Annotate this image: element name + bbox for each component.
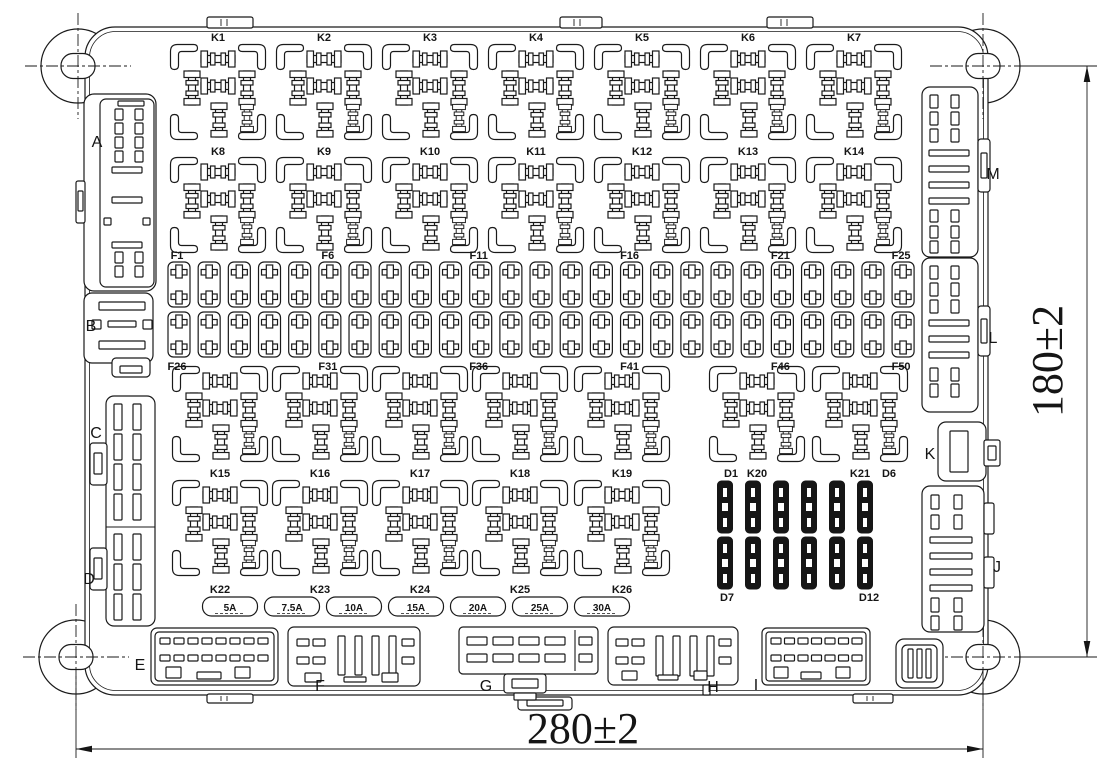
fuse-footprint [590,312,612,357]
relay-label-K21: K21 [850,468,870,480]
fuse-footprint [560,312,582,357]
fuse-footprint [228,312,250,357]
fuse-footprint [289,262,311,307]
connector-label-D: D [83,571,95,588]
fuse-footprint [711,312,733,357]
relay-label-K1: K1 [211,32,225,44]
relay-label-K22: K22 [210,584,230,596]
fuse-rating-7.5A: 7.5A [281,603,302,614]
fuse-footprint [651,312,673,357]
height-dimension-label: 180±2 [1023,305,1072,417]
relay-label-K10: K10 [420,146,440,158]
fuse-footprint [892,262,914,307]
relay-label-K8: K8 [211,146,225,158]
relay-label-K26: K26 [612,584,632,596]
diode [858,481,873,533]
fuse-footprint [168,262,190,307]
connector-I [762,628,870,685]
fuse-rating-30A: 30A [593,603,611,614]
relay-label-K25: K25 [510,584,530,596]
diode-label-D7: D7 [720,592,734,604]
relay-label-K3: K3 [423,32,437,44]
fuse-footprint [319,312,341,357]
fuse-footprint [349,312,371,357]
fuse-label-F6: F6 [321,250,334,262]
fuse-label-F36: F36 [469,361,488,373]
diode [718,537,733,589]
fuse-footprint [289,312,311,357]
fuse-footprint [470,262,492,307]
fuse-footprint [711,262,733,307]
connector-label-G: G [480,678,492,695]
connector-A [76,94,156,291]
connector-label-E: E [135,657,146,674]
fuse-footprint [621,262,643,307]
relay-label-K6: K6 [741,32,755,44]
fuse-footprint [681,312,703,357]
fuse-footprint [590,262,612,307]
connector-aux-square [896,639,943,688]
drawing-canvas: 5A7.5A10A15A20A25A30A K1K2K3K4K5K6K7K8K9… [0,0,1120,768]
relay-label-K13: K13 [738,146,758,158]
fuse-relay-box-drawing: 5A7.5A10A15A20A25A30A K1K2K3K4K5K6K7K8K9… [0,0,1120,768]
connector-label-B: B [86,318,97,335]
connector-F [288,627,420,686]
connector-label-A: A [92,134,103,151]
fuse-footprint [500,312,522,357]
fuse-footprint [651,262,673,307]
fuse-label-F21: F21 [771,250,790,262]
relay-label-K12: K12 [632,146,652,158]
fuse-rating-25A: 25A [531,603,549,614]
fuse-footprint [440,312,462,357]
fuse-footprint [530,262,552,307]
fuse-footprint [470,312,492,357]
fuse-footprint [198,262,220,307]
fuse-label-F25: F25 [892,250,911,262]
fuse-footprint [802,262,824,307]
relay-label-K23: K23 [310,584,330,596]
fuse-footprint [530,312,552,357]
connector-label-J: J [993,559,1001,576]
connector-label-F: F [315,678,325,695]
fuse-rating-10A: 10A [345,603,363,614]
fuse-footprint [862,312,884,357]
fuse-footprint [409,312,431,357]
fuse-label-F1: F1 [171,250,184,262]
diode [802,481,817,533]
fuse-footprint [832,262,854,307]
connector-label-M: M [986,166,999,183]
diode [858,537,873,589]
connector-label-C: C [90,425,102,442]
fuse-footprint [621,312,643,357]
relay-label-K18: K18 [510,468,530,480]
fuse-label-F41: F41 [620,361,639,373]
fuse-footprint [771,262,793,307]
fuse-footprint [771,312,793,357]
relay-label-K15: K15 [210,468,230,480]
relay-label-K2: K2 [317,32,331,44]
fuse-footprint [228,262,250,307]
fuse-footprint [198,312,220,357]
fuse-footprint [409,262,431,307]
fuse-label-F16: F16 [620,250,639,262]
fuse-footprint [259,312,281,357]
fuse-footprint [259,262,281,307]
fuse-footprint [379,312,401,357]
connector-E [151,628,278,685]
fuse-footprint [349,262,371,307]
relay-label-K17: K17 [410,468,430,480]
fuse-footprint [379,262,401,307]
fuse-footprint [319,262,341,307]
fuse-footprint [560,262,582,307]
diode [830,537,845,589]
diode [746,537,761,589]
fuse-footprint [681,262,703,307]
diode-label-D6: D6 [882,468,896,480]
relay-label-K11: K11 [526,146,546,158]
fuse-rating-20A: 20A [469,603,487,614]
diode [802,537,817,589]
relay-label-K7: K7 [847,32,861,44]
fuse-label-F26: F26 [168,361,187,373]
fuse-footprint [862,262,884,307]
connector-label-I: I [754,677,758,694]
fuse-label-F46: F46 [771,361,790,373]
fuse-rating-legend: 5A7.5A10A15A20A25A30A [203,597,630,616]
fuse-label-F31: F31 [318,361,337,373]
diode [774,481,789,533]
connector-label-L: L [989,330,998,347]
fuse-footprint [802,312,824,357]
connector-label-K: K [925,446,936,463]
connector-label-H: H [707,679,719,696]
diode [746,481,761,533]
connector-K [938,422,1000,481]
diode-label-D1: D1 [724,468,738,480]
relay-label-K4: K4 [529,32,544,44]
relay-label-K5: K5 [635,32,649,44]
relay-label-K14: K14 [844,146,865,158]
fuse-footprint [500,262,522,307]
diode [774,537,789,589]
fuse-footprint [741,262,763,307]
relay-label-K16: K16 [310,468,330,480]
fuse-rating-15A: 15A [407,603,425,614]
diode [830,481,845,533]
fuse-footprint [832,312,854,357]
relay-label-K19: K19 [612,468,632,480]
relay-label-K24: K24 [410,584,431,596]
fuse-footprint [892,312,914,357]
fuse-rating-5A: 5A [224,603,237,614]
connector-J [922,486,994,632]
fuse-label-F11: F11 [470,250,488,262]
relay-label-K9: K9 [317,146,331,158]
relay-label-K20: K20 [747,468,767,480]
fuse-footprint [440,262,462,307]
fuse-footprint [741,312,763,357]
width-dimension-label: 280±2 [527,704,639,753]
diode-label-D12: D12 [859,592,879,604]
diode [718,481,733,533]
fuse-label-F50: F50 [892,361,911,373]
fuse-footprint [168,312,190,357]
